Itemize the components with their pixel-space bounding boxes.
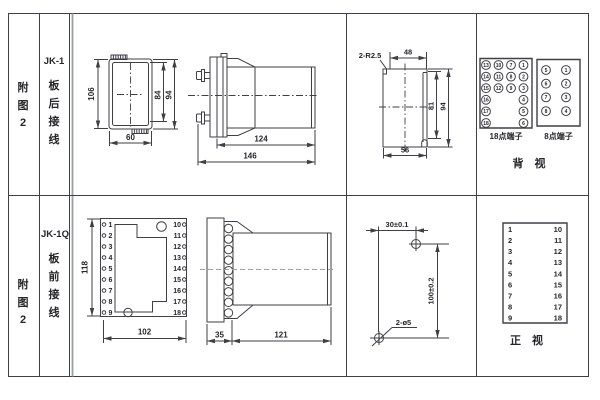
terminal-pin-icon [183, 289, 187, 293]
terminal-number: 15 [554, 280, 562, 289]
terminal-pin-icon [224, 277, 232, 285]
terminal-number: 5 [508, 269, 512, 278]
figure-char: 附 [18, 80, 29, 94]
terminal-pin-icon [183, 267, 187, 271]
jk1q-front-view-drawing: 123456789 101112131415161718 [101, 219, 187, 317]
hole-spec-label: 2-ø5 [396, 318, 411, 327]
terminal-number: 2 [508, 236, 512, 245]
terminal-pin-icon [102, 300, 106, 304]
figure-char: 附 [18, 277, 29, 291]
dim-text: 81 [427, 102, 436, 110]
terminal-18pt-grid: 131071141182151293164175186 [482, 61, 528, 128]
terminal-8pt-caption: 8点端子 [544, 131, 572, 141]
mounting-screw-icon [197, 70, 211, 82]
terminal-list-right: 101112131415161718 [554, 225, 563, 323]
wiring-char: 线 [49, 132, 60, 146]
terminal-number: 7 [510, 63, 513, 69]
terminal-pin-icon [224, 288, 232, 296]
dim-body-121: 121 [232, 307, 331, 345]
drilling-plan-drawing: 30±0.1 100±0.2 2-ø5 [366, 220, 449, 346]
wiring-char: 板 [49, 251, 61, 265]
terminal-pin-icon [183, 278, 187, 282]
terminal-number: 11 [554, 236, 562, 245]
terminal-number: 13 [554, 258, 562, 267]
jk1-rear-view-drawing [109, 55, 152, 134]
terminal-number: 17 [554, 303, 562, 312]
terminal-number: 13 [483, 63, 489, 69]
back-view-label: 背 视 [513, 156, 546, 170]
wiring-char: 后 [49, 96, 60, 110]
dim-width-102: 102 [104, 320, 187, 343]
terminal-number: 14 [554, 269, 563, 278]
terminal-number: 1 [565, 68, 568, 74]
terminal-number: 15 [173, 277, 181, 284]
jk1q-side-terminal-pins [224, 224, 232, 317]
terminal-pin-icon [183, 234, 187, 238]
terminal-number: 5 [545, 68, 548, 74]
terminal-number: 6 [508, 280, 512, 289]
jk1-side-view-drawing [188, 54, 317, 138]
terminal-pin-icon [183, 311, 187, 315]
dim-text: 106 [87, 87, 96, 101]
terminal-number: 18 [173, 310, 181, 317]
terminal-pin-icon [183, 300, 187, 304]
model-name: JK-1 [44, 56, 65, 67]
dim-cutout-48: 48 [390, 48, 427, 70]
terminal-pin-icon [102, 223, 106, 227]
dim-text: 146 [243, 152, 257, 161]
terminal-number: 17 [173, 299, 181, 306]
terminal-pin-icon [102, 245, 106, 249]
terminal-number: 12 [554, 247, 562, 256]
terminal-pin-icon [224, 298, 232, 306]
terminal-number: 1 [508, 225, 512, 234]
wiring-char: 板 [49, 78, 61, 92]
terminal-pin-icon [224, 267, 232, 275]
terminal-number: 8 [545, 109, 548, 115]
terminal-number: 3 [109, 244, 113, 251]
terminal-number: 7 [109, 288, 113, 295]
dim-flange-35: 35 [207, 320, 232, 345]
wiring-char: 前 [49, 269, 60, 283]
dim-text: 35 [215, 331, 224, 340]
terminal-number: 10 [173, 222, 181, 229]
terminal-pin-icon [224, 224, 232, 232]
dim-text: 94 [439, 102, 448, 111]
terminal-pin-icon [183, 256, 187, 260]
terminal-pin-icon [102, 234, 106, 238]
jk1q-right-terminals: 101112131415161718 [173, 222, 186, 317]
terminal-number: 6 [522, 121, 525, 127]
dim-text: 56 [401, 146, 409, 155]
terminal-number: 11 [174, 233, 182, 240]
terminal-18pt-diagram: 131071141182151293164175186 18点端子 [480, 59, 532, 142]
mounting-hole-icon [157, 222, 167, 232]
dim-text: 48 [404, 48, 412, 57]
figure-char: 图 [18, 296, 29, 309]
technical-drawing-svg: 附 图 2 JK-1 板 后 接 线 106 60 84 [0, 0, 600, 400]
terminal-number: 18 [554, 314, 562, 323]
terminal-list-left: 123456789 [508, 225, 513, 323]
terminal-number: 17 [483, 109, 489, 115]
terminal-number: 4 [508, 258, 513, 267]
terminal-number: 2 [522, 74, 525, 80]
wiring-char: 接 [49, 287, 60, 301]
terminal-number: 1 [522, 63, 525, 69]
radius-label: 2-R2.5 [359, 51, 382, 60]
terminal-number: 16 [173, 288, 181, 295]
terminal-number: 8 [510, 74, 513, 80]
dim-text: 121 [274, 331, 288, 340]
terminal-pin-icon [224, 309, 232, 317]
wiring-char: 线 [49, 305, 60, 319]
terminal-pin-icon [224, 235, 232, 243]
terminal-pin-icon [102, 278, 106, 282]
technical-drawing-page: 附 图 2 JK-1 板 后 接 线 106 60 84 [0, 0, 600, 400]
terminal-pin-icon [224, 256, 232, 264]
terminal-number: 6 [109, 277, 113, 284]
terminal-pin-icon [183, 223, 187, 227]
jk1q-side-view-drawing [200, 218, 336, 322]
terminal-number: 9 [510, 86, 513, 92]
cutout-radius-callout: 2-R2.5 [359, 51, 387, 70]
dim-text: 30±0.1 [386, 220, 409, 229]
terminal-pin-icon [102, 267, 106, 271]
terminal-8pt-diagram: 51627384 8点端子 [537, 60, 580, 142]
terminal-number: 18 [483, 121, 489, 127]
dim-height-118: 118 [81, 219, 101, 316]
dim-text: 100±0.2 [427, 277, 436, 304]
mounting-screw-icon [197, 112, 211, 124]
terminal-number: 5 [522, 109, 525, 115]
terminal-number: 8 [109, 299, 113, 306]
terminal-number: 12 [496, 86, 502, 92]
terminal-pin-icon [102, 311, 106, 315]
dim-text: 60 [126, 133, 135, 142]
terminal-pin-icon [224, 245, 232, 253]
terminal-number: 13 [173, 255, 181, 262]
dim-height-106: 106 [87, 60, 108, 129]
figure-char: 图 [18, 99, 29, 112]
terminal-number: 9 [109, 310, 113, 317]
top-model-label: JK-1 板 后 接 线 [44, 56, 65, 146]
model-name: JK-1Q [41, 229, 69, 240]
dim-text: 118 [81, 260, 90, 273]
terminal-pin-icon [102, 256, 106, 260]
terminal-number: 8 [508, 303, 512, 312]
terminal-number: 3 [565, 95, 568, 101]
terminal-list-diagram: 123456789 101112131415161718 [503, 223, 567, 323]
terminal-8pt-grid: 51627384 [542, 66, 571, 116]
terminal-number: 15 [483, 86, 489, 92]
terminal-number: 4 [565, 109, 568, 115]
top-figure-label: 附 图 2 [18, 80, 29, 129]
terminal-number: 14 [483, 74, 489, 80]
figure-char: 2 [20, 117, 26, 129]
terminal-pin-icon [102, 289, 106, 293]
terminal-number: 4 [522, 98, 525, 104]
dim-text: 84 [154, 90, 163, 99]
terminal-number: 2 [109, 233, 113, 240]
terminal-number: 7 [508, 292, 512, 301]
terminal-number: 2 [565, 82, 568, 88]
terminal-pin-icon [183, 245, 187, 249]
terminal-number: 11 [496, 74, 502, 80]
terminal-number: 16 [554, 292, 562, 301]
terminal-number: 4 [109, 255, 113, 262]
terminal-18pt-caption: 18点端子 [490, 131, 523, 141]
terminal-number: 3 [522, 86, 525, 92]
dim-text: 102 [138, 328, 152, 337]
bottom-figure-label: 附 图 2 [18, 277, 29, 326]
terminal-number: 3 [508, 247, 512, 256]
figure-char: 2 [20, 314, 26, 326]
terminal-number: 9 [508, 314, 512, 323]
terminal-number: 5 [109, 266, 113, 273]
terminal-number: 16 [483, 98, 489, 104]
dim-text: 124 [254, 135, 268, 144]
jk1q-left-terminals: 123456789 [102, 222, 112, 317]
terminal-number: 14 [173, 266, 181, 273]
bottom-model-label: JK-1Q 板 前 接 线 [41, 229, 69, 319]
terminal-number: 10 [496, 63, 502, 69]
terminal-number: 1 [109, 222, 113, 229]
terminal-number: 7 [545, 95, 548, 101]
terminal-number: 10 [554, 225, 562, 234]
terminal-number: 12 [173, 244, 181, 251]
dim-text: 94 [165, 90, 174, 99]
front-view-label: 正 视 [510, 333, 543, 347]
wiring-char: 接 [49, 114, 60, 128]
terminal-number: 6 [545, 82, 548, 88]
